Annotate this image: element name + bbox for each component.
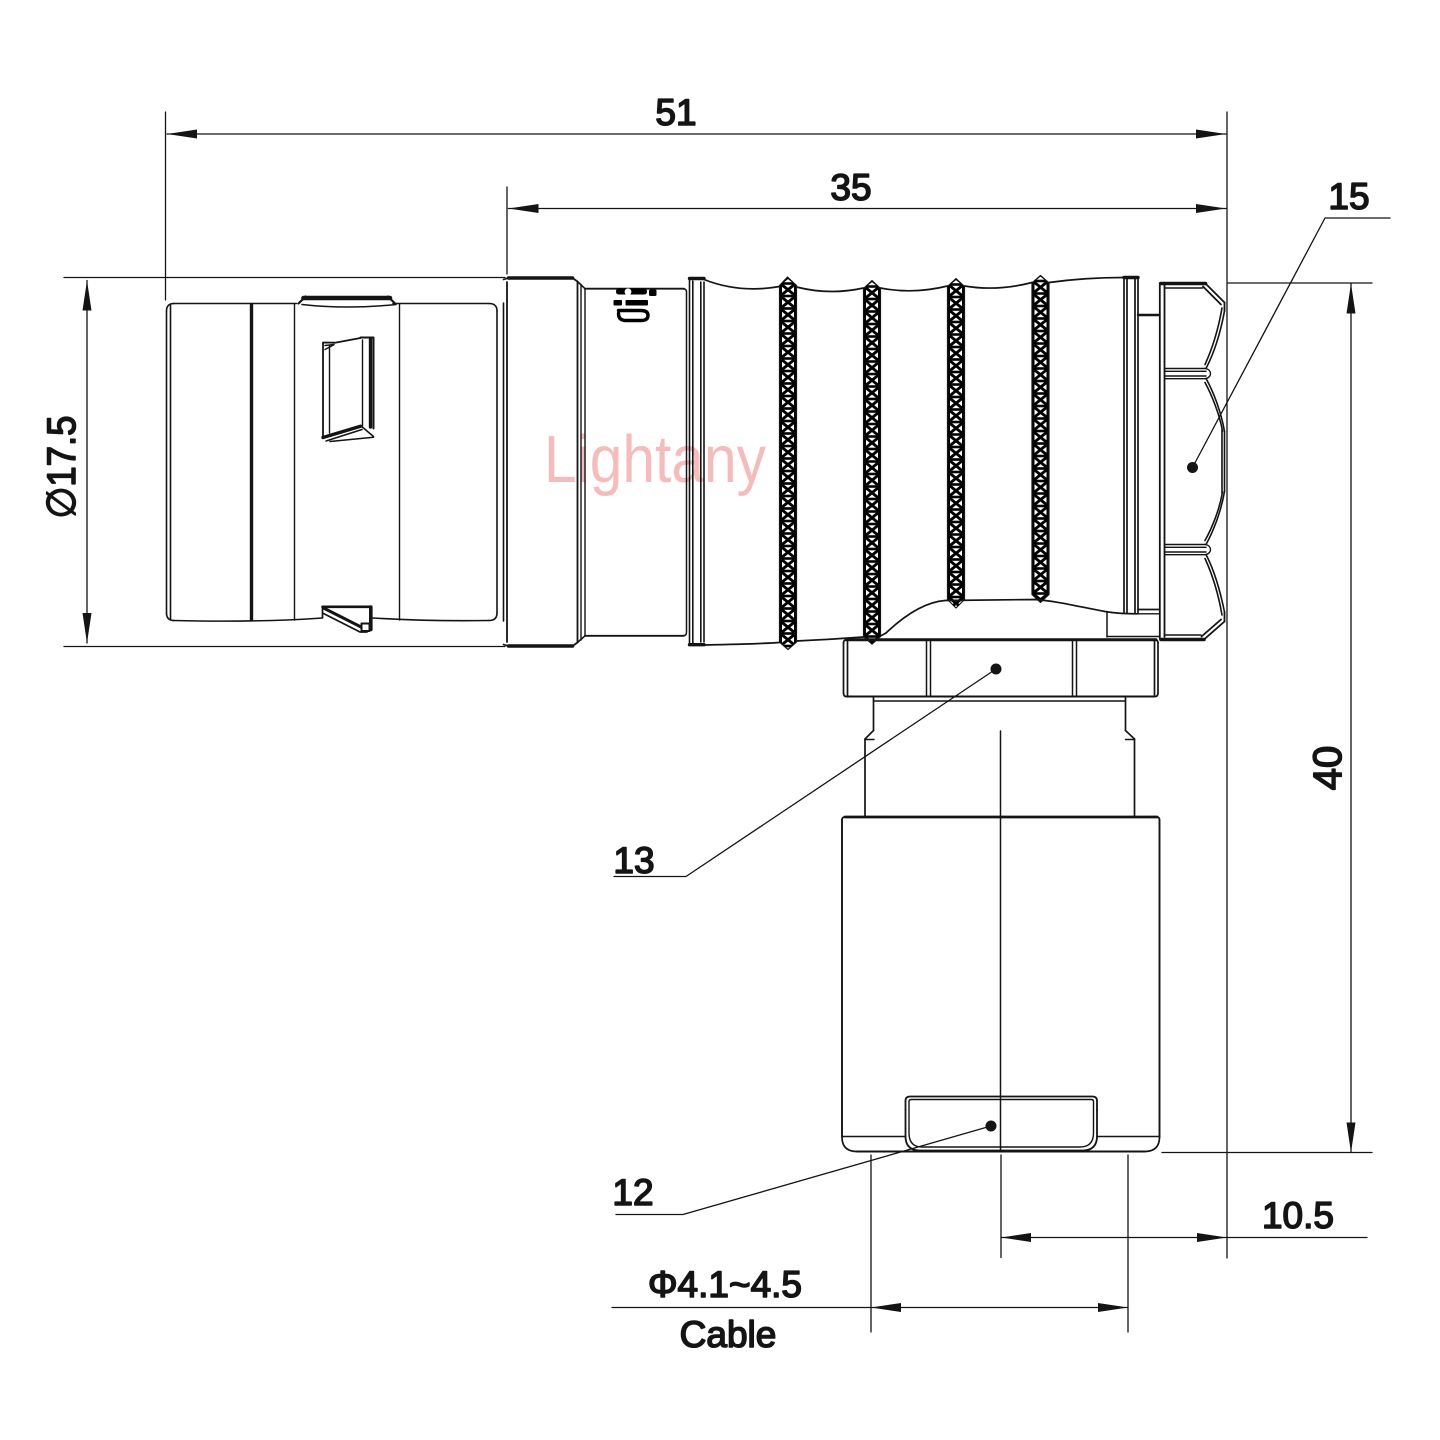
svg-text:Φ4.1~4.5: Φ4.1~4.5 (648, 1264, 802, 1305)
svg-text:15: 15 (1328, 176, 1369, 217)
svg-text:∅17.5: ∅17.5 (40, 416, 84, 519)
svg-text:Cable: Cable (680, 1314, 777, 1355)
svg-text:12: 12 (612, 1172, 653, 1213)
svg-text:35: 35 (830, 167, 871, 208)
svg-text:10.5: 10.5 (1262, 1195, 1334, 1236)
svg-text:40: 40 (1306, 746, 1350, 791)
svg-text:51: 51 (655, 92, 696, 133)
svg-text:13: 13 (613, 840, 654, 881)
